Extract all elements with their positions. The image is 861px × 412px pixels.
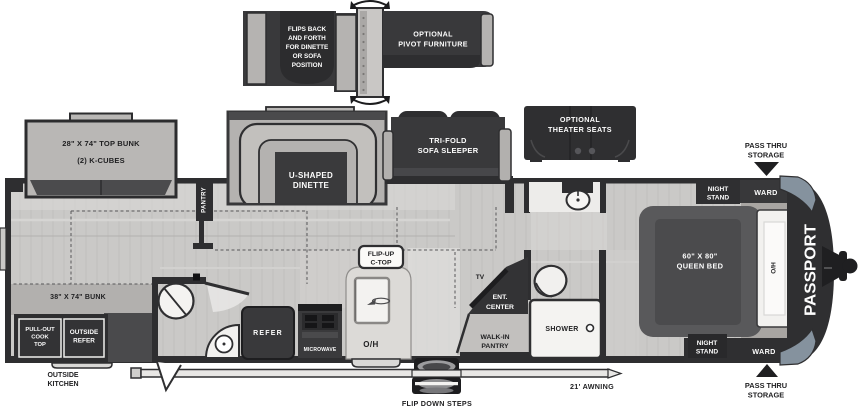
svg-text:FLIP-UP: FLIP-UP xyxy=(368,251,395,258)
svg-text:C-TOP: C-TOP xyxy=(370,260,391,267)
svg-text:MICROWAVE: MICROWAVE xyxy=(304,347,337,353)
svg-text:CENTER: CENTER xyxy=(486,304,514,311)
svg-text:O/H: O/H xyxy=(363,340,378,349)
svg-text:OPTIONAL: OPTIONAL xyxy=(560,115,601,124)
svg-text:FLIP DOWN STEPS: FLIP DOWN STEPS xyxy=(402,399,472,408)
svg-text:STAND: STAND xyxy=(707,195,729,202)
svg-text:PASS THRU: PASS THRU xyxy=(745,381,787,390)
svg-text:(2) K-CUBES: (2) K-CUBES xyxy=(77,156,125,165)
svg-text:STAND: STAND xyxy=(696,349,718,356)
svg-text:PIVOT FURNITURE: PIVOT FURNITURE xyxy=(398,40,468,49)
svg-text:SOFA SLEEPER: SOFA SLEEPER xyxy=(418,146,479,155)
svg-text:AND FORTH: AND FORTH xyxy=(288,35,326,42)
svg-text:DINETTE: DINETTE xyxy=(293,181,330,190)
svg-text:TV: TV xyxy=(476,274,485,281)
svg-text:OR SOFA: OR SOFA xyxy=(293,53,322,60)
svg-text:POSITION: POSITION xyxy=(292,62,323,69)
svg-text:REFER: REFER xyxy=(253,330,283,337)
svg-text:OUTSIDE: OUTSIDE xyxy=(70,329,99,336)
svg-text:WARD: WARD xyxy=(752,347,776,356)
svg-text:PANTRY: PANTRY xyxy=(202,187,208,213)
svg-text:FLIPS BACK: FLIPS BACK xyxy=(288,26,327,33)
svg-text:ENT.: ENT. xyxy=(493,294,508,301)
svg-text:WALK-IN: WALK-IN xyxy=(480,334,509,341)
svg-text:PASSPORT: PASSPORT xyxy=(803,224,820,316)
svg-text:PASS THRU: PASS THRU xyxy=(745,141,787,150)
svg-text:STORAGE: STORAGE xyxy=(748,391,784,400)
svg-text:PANTRY: PANTRY xyxy=(481,343,509,350)
svg-text:NIGHT: NIGHT xyxy=(697,340,718,347)
svg-text:U-SHAPED: U-SHAPED xyxy=(289,171,333,180)
svg-text:TRI-FOLD: TRI-FOLD xyxy=(429,136,467,145)
svg-text:FOR DINETTE: FOR DINETTE xyxy=(286,44,329,51)
svg-text:WARD: WARD xyxy=(754,188,778,197)
svg-text:28" X 74" TOP BUNK: 28" X 74" TOP BUNK xyxy=(62,139,140,148)
svg-text:QUEEN BED: QUEEN BED xyxy=(677,262,724,271)
svg-text:STORAGE: STORAGE xyxy=(748,151,784,160)
svg-text:OPTIONAL: OPTIONAL xyxy=(413,30,453,39)
svg-text:PULL-OUT: PULL-OUT xyxy=(25,327,55,333)
svg-text:38" X 74" BUNK: 38" X 74" BUNK xyxy=(50,294,106,301)
svg-text:NIGHT: NIGHT xyxy=(708,186,729,193)
svg-text:21' AWNING: 21' AWNING xyxy=(570,382,614,391)
svg-text:OUTSIDE: OUTSIDE xyxy=(47,372,78,379)
svg-text:O/H: O/H xyxy=(771,262,778,274)
svg-text:REFER: REFER xyxy=(73,338,95,345)
svg-text:SHOWER: SHOWER xyxy=(545,326,578,333)
svg-text:60" X 80": 60" X 80" xyxy=(682,252,717,261)
svg-text:TOP: TOP xyxy=(34,342,46,348)
svg-text:KITCHEN: KITCHEN xyxy=(47,381,78,388)
svg-text:THEATER SEATS: THEATER SEATS xyxy=(548,125,612,134)
svg-text:COOK: COOK xyxy=(31,335,49,341)
